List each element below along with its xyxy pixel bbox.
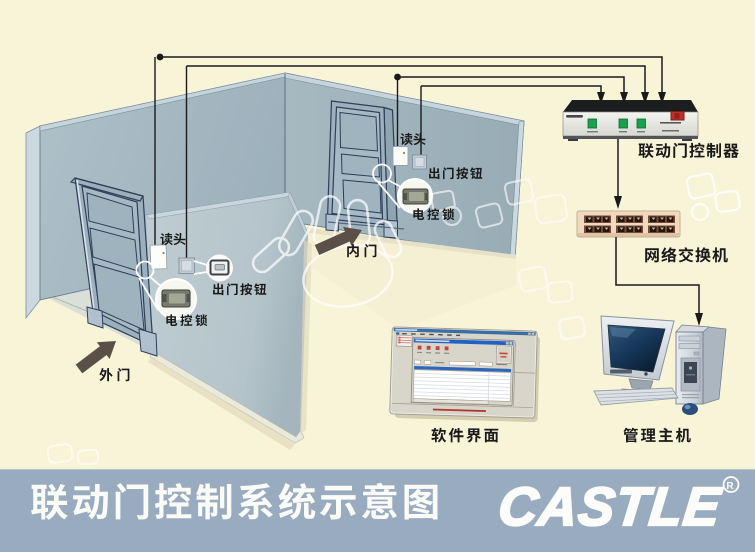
svg-text:CASTLE: CASTLE	[496, 477, 725, 537]
svg-text:R: R	[726, 481, 734, 492]
